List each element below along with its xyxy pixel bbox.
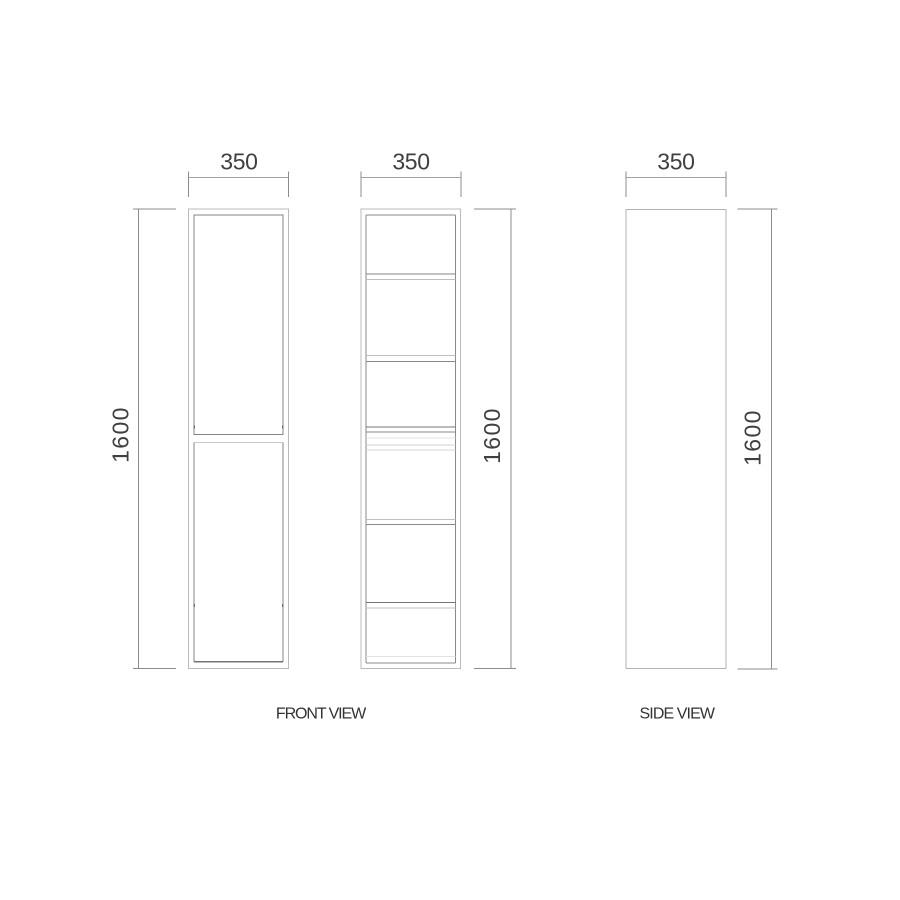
svg-text:350: 350 [392,148,429,174]
svg-text:1600: 1600 [108,406,134,463]
svg-text:1600: 1600 [479,407,505,464]
svg-text:SIDE VIEW: SIDE VIEW [640,706,716,723]
svg-text:FRONT VIEW: FRONT VIEW [276,706,367,723]
svg-text:1600: 1600 [739,409,765,466]
svg-text:350: 350 [220,148,257,174]
svg-text:350: 350 [657,148,694,174]
